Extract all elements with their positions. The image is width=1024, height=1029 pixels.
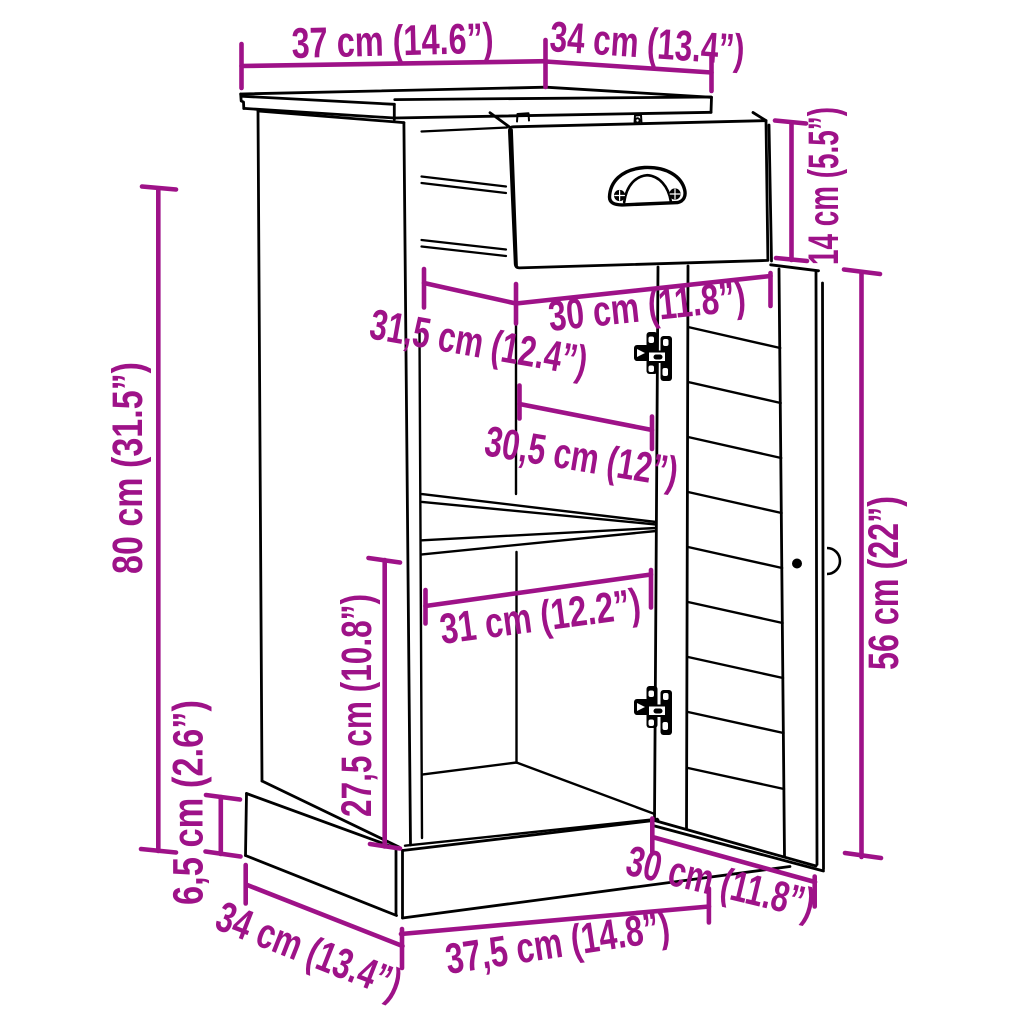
svg-text:6,5 cm (2.6”): 6,5 cm (2.6”) [165, 700, 213, 905]
svg-text:37 cm (14.6”): 37 cm (14.6”) [291, 15, 494, 68]
svg-text:56 cm (22”): 56 cm (22”) [860, 496, 908, 670]
svg-text:14 cm (5.5”): 14 cm (5.5”) [800, 107, 848, 265]
svg-text:27,5 cm (10.8”): 27,5 cm (10.8”) [333, 594, 381, 817]
svg-text:80 cm (31.5”): 80 cm (31.5”) [104, 362, 152, 574]
